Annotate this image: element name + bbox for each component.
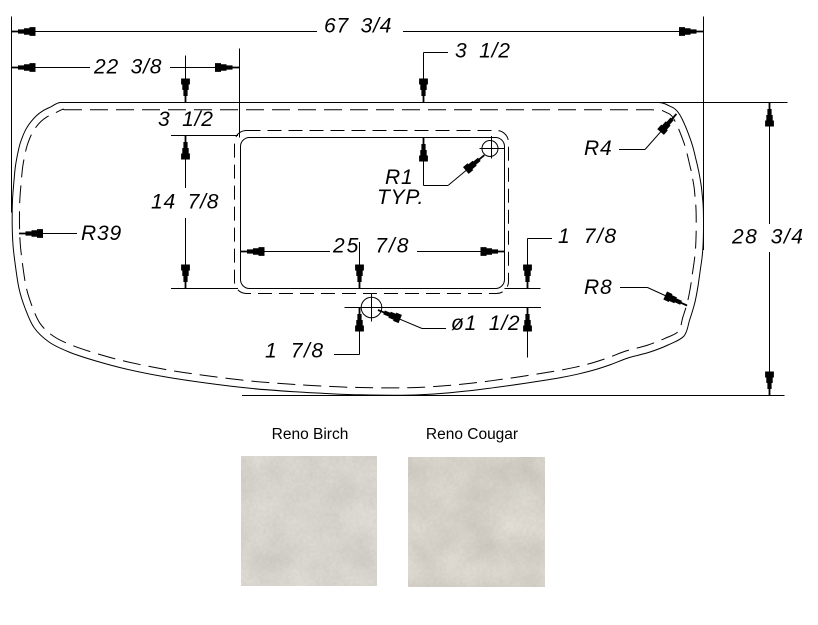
svg-text:Reno Cougar: Reno Cougar (426, 426, 518, 443)
svg-text:14 7/8: 14 7/8 (151, 191, 219, 214)
svg-text:3 1/2: 3 1/2 (158, 108, 214, 131)
svg-text:1 7/8: 1 7/8 (558, 225, 618, 248)
svg-text:R39: R39 (81, 222, 122, 245)
svg-text:R4: R4 (584, 137, 612, 160)
svg-text:1 7/8: 1 7/8 (265, 340, 325, 363)
svg-text:67 3/4: 67 3/4 (324, 15, 392, 38)
svg-text:22 3/8: 22 3/8 (93, 56, 162, 79)
svg-text:R8: R8 (584, 276, 612, 299)
svg-text:25 7/8: 25 7/8 (332, 235, 410, 258)
svg-text:TYP.: TYP. (377, 186, 424, 209)
svg-text:3 1/2: 3 1/2 (455, 40, 511, 63)
svg-text:Reno Birch: Reno Birch (272, 426, 349, 443)
svg-text:ø1 1/2: ø1 1/2 (451, 312, 520, 335)
svg-text:28 3/4: 28 3/4 (731, 226, 804, 249)
